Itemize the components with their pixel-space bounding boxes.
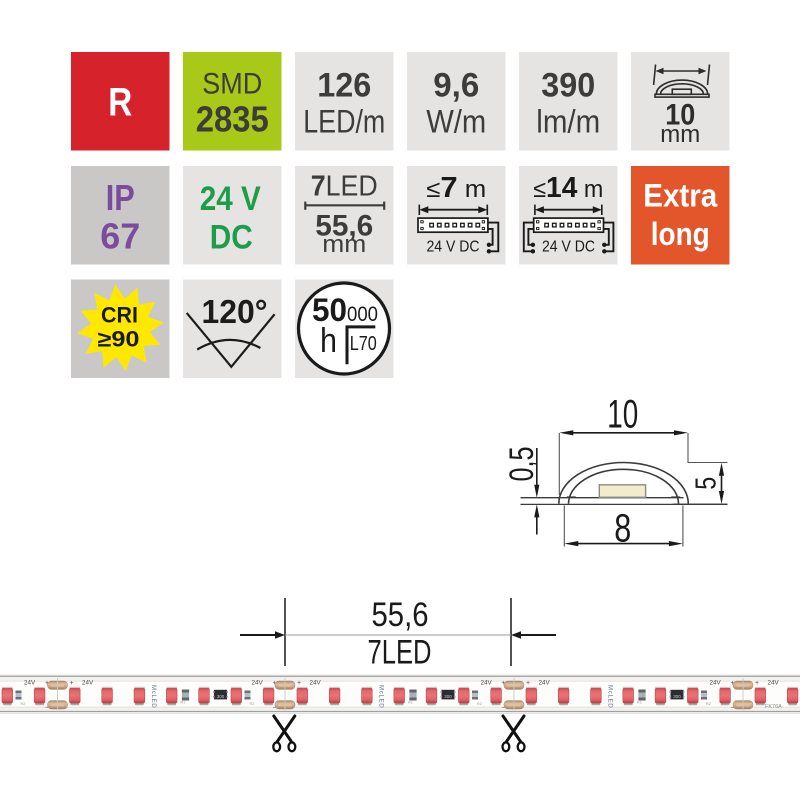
svg-text:5: 5 (691, 477, 723, 490)
svg-text:R1: R1 (637, 701, 642, 705)
svg-text:R2: R2 (21, 702, 26, 706)
svg-text:long: long (651, 216, 710, 252)
svg-text:≥90: ≥90 (98, 326, 140, 351)
svg-text:24V: 24V (481, 679, 493, 686)
svg-text:+: + (70, 680, 74, 687)
svg-text:8: 8 (614, 507, 631, 551)
svg-text:mm: mm (660, 121, 700, 148)
svg-text:McLED: McLED (150, 685, 157, 708)
svg-text:≤7 m: ≤7 m (426, 172, 486, 204)
svg-text:24V: 24V (710, 679, 722, 686)
svg-text:McLED: McLED (378, 685, 385, 708)
svg-text:24 V DC: 24 V DC (542, 239, 595, 256)
svg-text:lm/m: lm/m (536, 104, 600, 140)
svg-text:Extra: Extra (643, 178, 717, 214)
svg-text:R2: R2 (477, 702, 482, 706)
svg-text:CRI: CRI (101, 302, 138, 327)
svg-text:7LED: 7LED (311, 171, 378, 203)
svg-text:R: R (108, 81, 132, 125)
svg-text:24V: 24V (768, 679, 780, 686)
svg-text:R2: R2 (250, 702, 255, 706)
svg-text:24 V DC: 24 V DC (427, 239, 480, 256)
svg-text:24V: 24V (24, 679, 36, 686)
svg-text:+: + (526, 680, 530, 687)
svg-text:L70: L70 (350, 333, 377, 355)
svg-text:7LED: 7LED (368, 634, 432, 672)
svg-text:+: + (755, 680, 759, 687)
svg-text:67: 67 (100, 216, 140, 257)
svg-text:SMD: SMD (202, 68, 262, 101)
svg-text:120°: 120° (202, 293, 268, 330)
svg-text:24 V: 24 V (200, 180, 261, 218)
svg-text:R1: R1 (181, 701, 186, 705)
svg-text:24V: 24V (82, 679, 94, 686)
svg-text:IP: IP (106, 177, 135, 218)
svg-text:mm: mm (322, 231, 366, 258)
svg-text:≤14 m: ≤14 m (533, 172, 603, 204)
svg-text:2835: 2835 (196, 99, 269, 140)
svg-text:24V: 24V (310, 679, 322, 686)
svg-text:300: 300 (217, 694, 225, 699)
svg-text:300: 300 (673, 694, 681, 699)
svg-text:000: 000 (347, 302, 378, 326)
svg-text:FK76A: FK76A (765, 704, 782, 710)
svg-text:LED/m: LED/m (303, 104, 385, 140)
svg-text:W/m: W/m (426, 104, 486, 140)
svg-text:10: 10 (607, 393, 638, 437)
svg-text:R2: R2 (706, 702, 711, 706)
svg-text:24V: 24V (252, 679, 264, 686)
svg-text:9,6: 9,6 (433, 67, 479, 105)
svg-text:DC: DC (210, 219, 253, 257)
svg-text:126: 126 (317, 67, 371, 105)
svg-text:24V: 24V (539, 679, 551, 686)
svg-text:0,5: 0,5 (503, 447, 541, 482)
svg-text:h: h (320, 322, 337, 360)
svg-text:55,6: 55,6 (372, 596, 429, 634)
svg-text:McLED: McLED (607, 685, 614, 708)
svg-text:390: 390 (541, 67, 595, 105)
svg-text:R1: R1 (408, 701, 413, 705)
svg-text:+: + (297, 680, 301, 687)
svg-text:300: 300 (444, 694, 452, 699)
